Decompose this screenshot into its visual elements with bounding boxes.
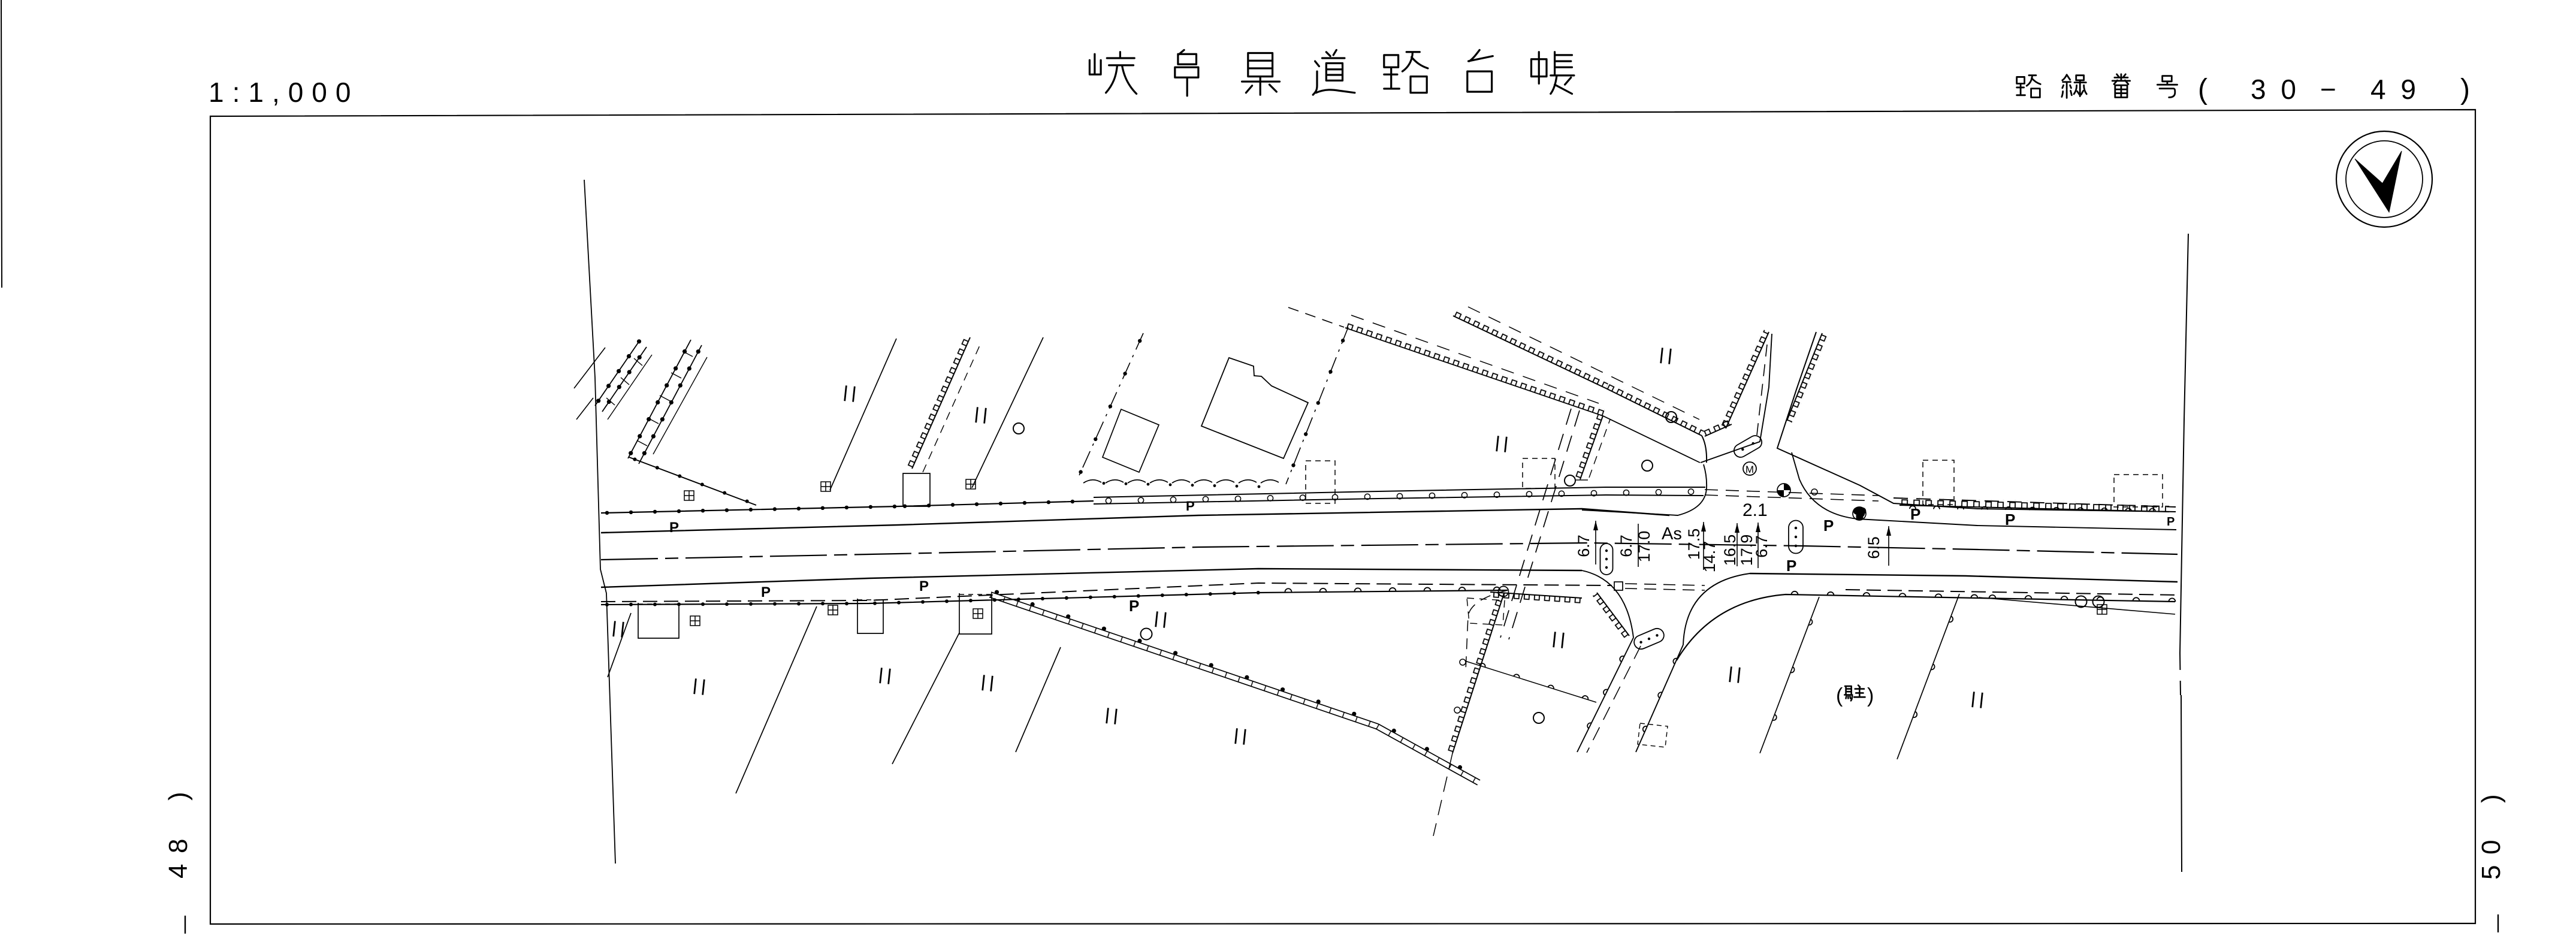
svg-text:8: 8 [164,839,193,853]
svg-text:P: P [1823,517,1834,535]
svg-text:): ) [2460,74,2470,105]
svg-text:M: M [1745,464,1754,475]
svg-text:P: P [2167,515,2175,529]
svg-text:5: 5 [2477,865,2506,880]
svg-text:P: P [1129,597,1139,615]
svg-text:P: P [1786,557,1796,575]
svg-text:1:1,000: 1:1,000 [209,77,359,108]
svg-text:): ) [164,792,193,801]
svg-text:P: P [919,578,929,594]
svg-text:6.7: 6.7 [1753,535,1771,558]
svg-text:P: P [1910,505,1920,523]
svg-text:16.5: 16.5 [1721,535,1739,566]
svg-text:6.7: 6.7 [1617,535,1635,557]
svg-text:): ) [2477,794,2506,803]
svg-text:P: P [1186,499,1195,514]
svg-text:4 9: 4 9 [2370,74,2420,105]
svg-text:6.5: 6.5 [1865,536,1883,559]
svg-text:17.0: 17.0 [1635,531,1653,563]
svg-text:P: P [669,520,679,536]
svg-text:4: 4 [164,864,193,878]
svg-text:(: ( [1836,684,1843,707]
svg-text:): ) [1867,684,1874,707]
svg-text:6.7: 6.7 [1575,535,1593,557]
svg-text:2.1: 2.1 [1743,500,1768,520]
svg-text:(: ( [2198,74,2207,105]
svg-text:P: P [761,584,771,600]
svg-text:−: − [2320,74,2336,105]
svg-text:3 0: 3 0 [2251,74,2300,105]
svg-text:P: P [2005,511,2015,529]
svg-text:0: 0 [2477,840,2506,855]
svg-text:As: As [1662,524,1682,544]
svg-text:14.7: 14.7 [1701,541,1719,573]
